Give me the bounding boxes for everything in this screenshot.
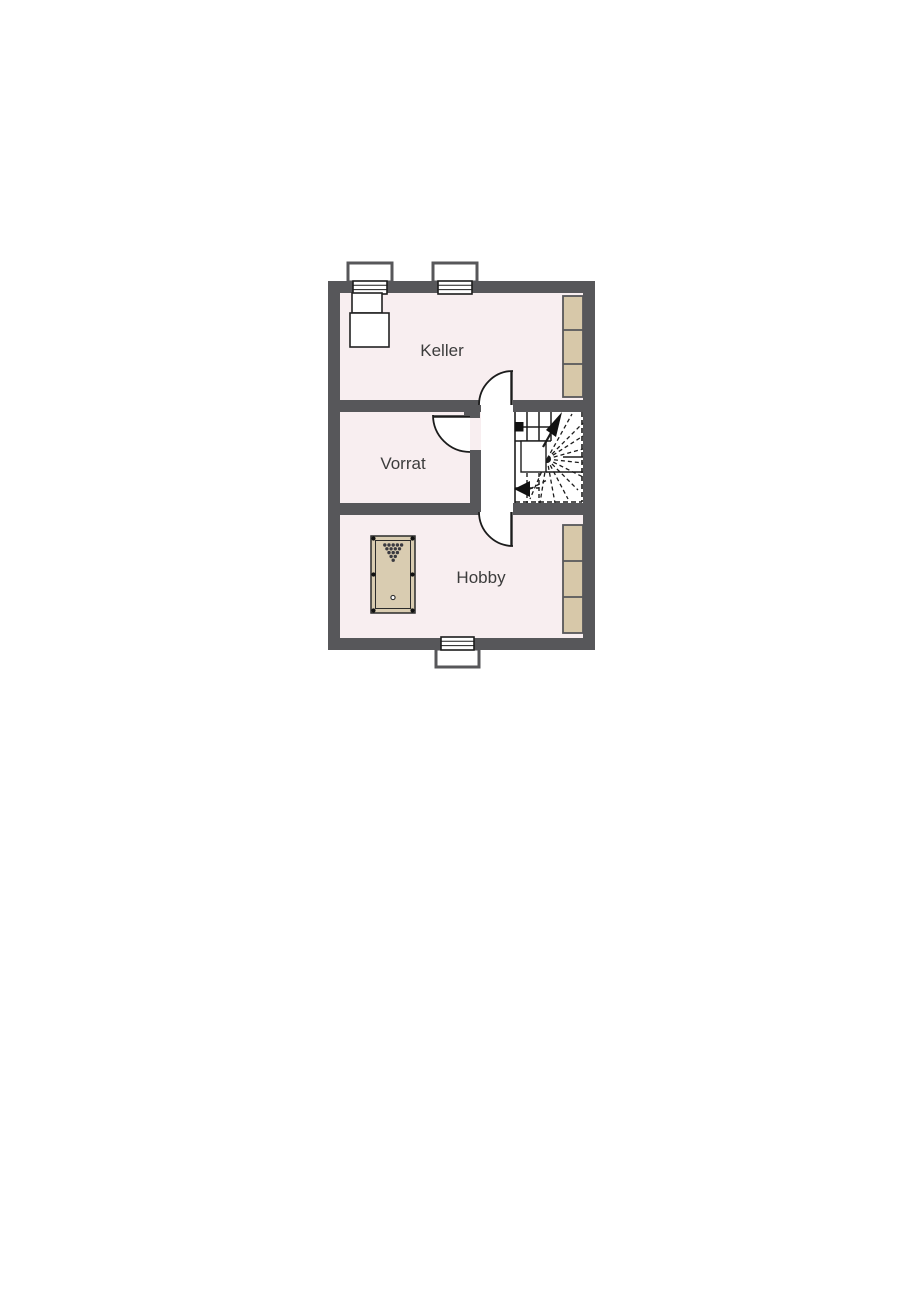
room-label-keller: Keller (420, 341, 464, 360)
wall-hobby-right (513, 503, 583, 515)
shelves-hobby (563, 525, 583, 633)
floor-plan-drawing: Keller Vorrat Hobby (0, 0, 920, 1302)
window-bottom (436, 637, 479, 667)
stair-start-marker (515, 422, 524, 432)
room-label-vorrat: Vorrat (380, 454, 426, 473)
floor-plan-page: Keller Vorrat Hobby (0, 0, 920, 1302)
wall-keller-right (513, 400, 583, 412)
wall-keller-left (340, 400, 481, 412)
room-label-hobby: Hobby (456, 568, 506, 587)
shelves-keller (563, 296, 583, 397)
billiard-cue-ball (391, 595, 395, 599)
wall-hobby-left (340, 503, 481, 515)
wall-vorrat-right (470, 450, 481, 503)
hallway-fill (481, 400, 515, 515)
window-top-left (348, 263, 392, 294)
window-top-right (433, 263, 477, 294)
billiard-table (371, 536, 415, 613)
stair-cut-box (521, 441, 546, 472)
